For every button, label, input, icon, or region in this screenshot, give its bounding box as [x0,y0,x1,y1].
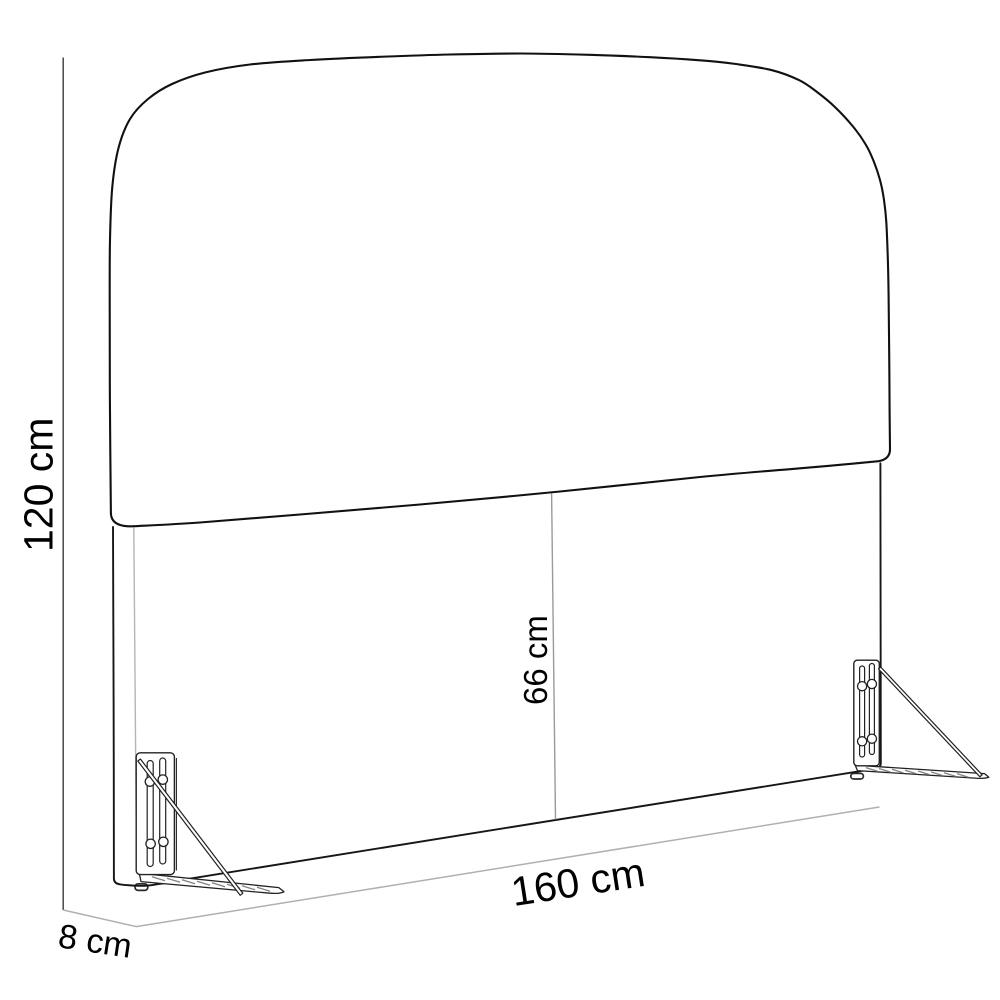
svg-text:120 cm: 120 cm [16,418,62,552]
svg-text:66 cm: 66 cm [517,615,554,705]
